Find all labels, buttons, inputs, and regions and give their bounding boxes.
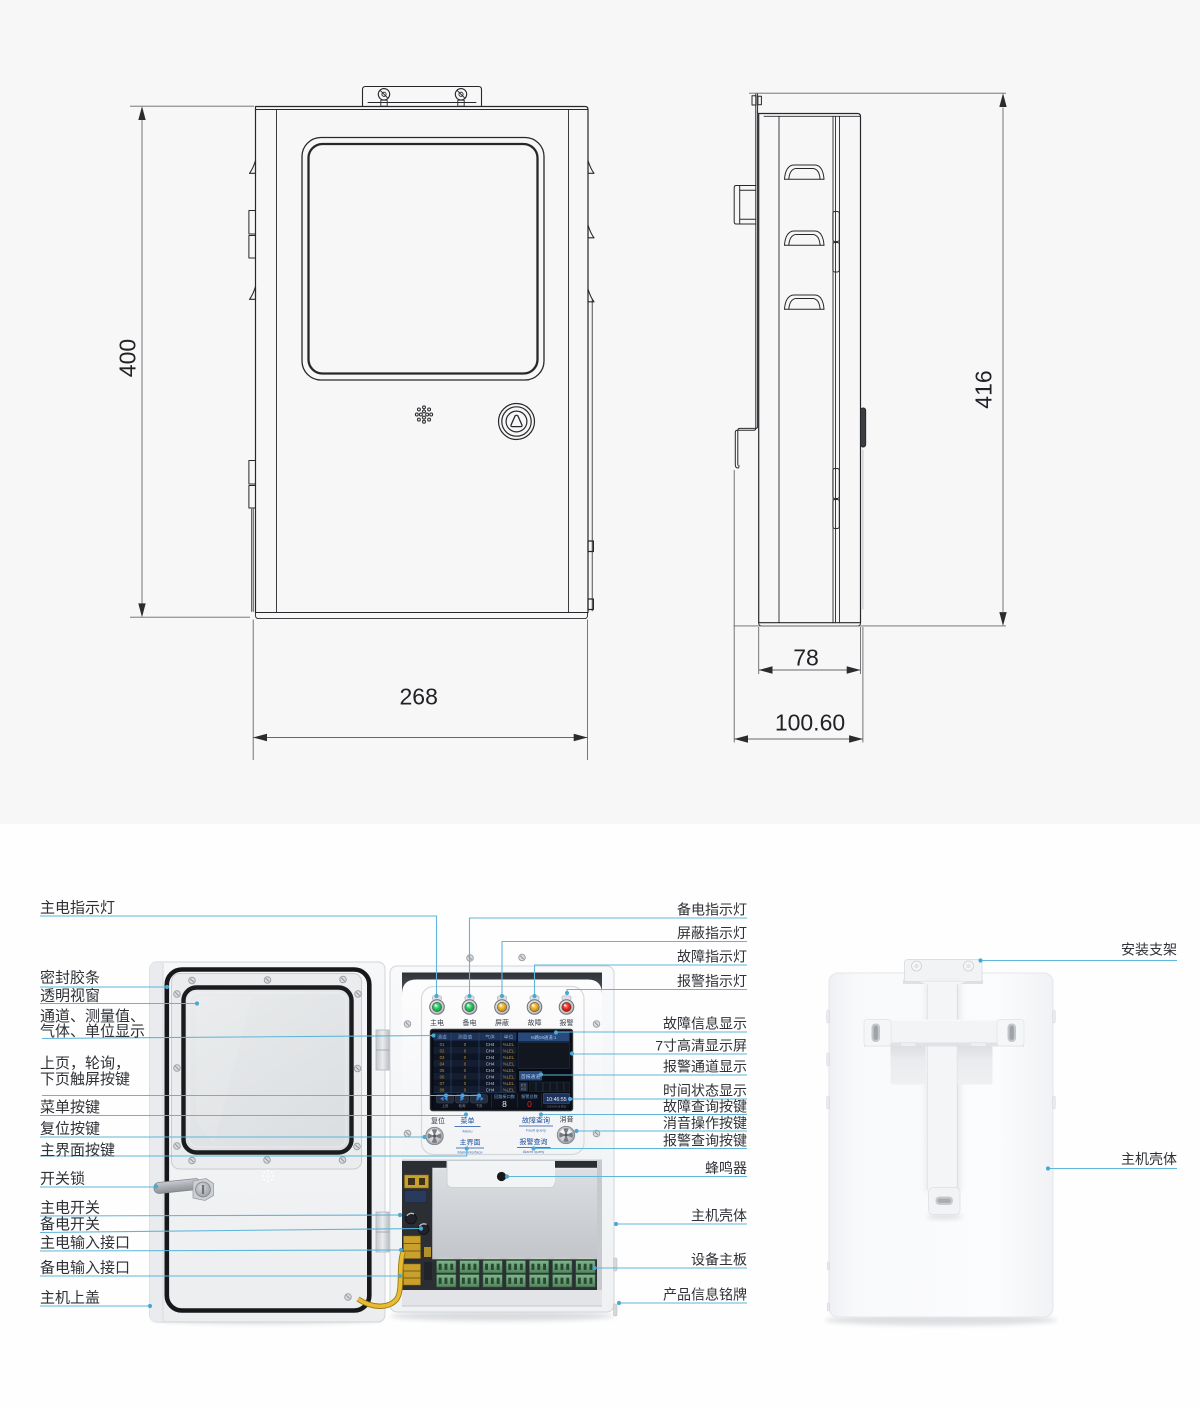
svg-text:%LEL: %LEL xyxy=(503,1081,515,1086)
svg-text:CH4: CH4 xyxy=(486,1042,495,1047)
svg-text:主机壳体: 主机壳体 xyxy=(691,1208,747,1224)
svg-text:下页: 下页 xyxy=(476,1104,483,1108)
svg-text:416: 416 xyxy=(971,370,997,408)
svg-text:报警指示灯: 报警指示灯 xyxy=(677,973,747,989)
svg-text:故障: 故障 xyxy=(528,1018,542,1027)
svg-text:268: 268 xyxy=(400,684,438,710)
svg-text:故障指示灯: 故障指示灯 xyxy=(677,949,747,965)
svg-text:M路08通道:1: M路08通道:1 xyxy=(531,1034,557,1041)
svg-text:故障查询: 故障查询 xyxy=(522,1116,550,1125)
svg-text:CH4: CH4 xyxy=(486,1087,495,1092)
svg-text:设备主板: 设备主板 xyxy=(691,1252,747,1268)
svg-text:安装支架: 安装支架 xyxy=(1121,942,1177,958)
svg-text:78: 78 xyxy=(793,645,819,671)
svg-text:01: 01 xyxy=(440,1042,445,1047)
svg-text:100.60: 100.60 xyxy=(775,710,845,736)
svg-text:CH4: CH4 xyxy=(486,1081,495,1086)
svg-text:Menu: Menu xyxy=(462,1129,472,1134)
svg-text:02: 02 xyxy=(440,1048,445,1053)
svg-text:主机上盖: 主机上盖 xyxy=(40,1290,100,1307)
svg-text:单位: 单位 xyxy=(504,1034,514,1041)
svg-text:复位: 复位 xyxy=(431,1116,445,1125)
svg-text:备电开关: 备电开关 xyxy=(40,1216,100,1233)
svg-text:气体: 气体 xyxy=(485,1034,495,1041)
svg-text:通道: 通道 xyxy=(520,1086,526,1091)
svg-text:产品信息铭牌: 产品信息铭牌 xyxy=(663,1287,747,1303)
svg-text:上页: 上页 xyxy=(442,1103,449,1108)
svg-text:通道: 通道 xyxy=(437,1034,447,1041)
svg-text:10:46:55: 10:46:55 xyxy=(546,1097,566,1103)
svg-text:主电开关: 主电开关 xyxy=(40,1200,100,1217)
svg-text:测量值: 测量值 xyxy=(458,1034,473,1041)
svg-text:上页，轮询，: 上页，轮询， xyxy=(40,1055,130,1072)
svg-text:密封胶条: 密封胶条 xyxy=(40,970,100,987)
svg-text:CH4: CH4 xyxy=(486,1068,495,1073)
svg-text:报警查询: 报警查询 xyxy=(520,1137,548,1146)
svg-text:故障信息显示: 故障信息显示 xyxy=(663,1016,747,1032)
svg-text:轮询: 轮询 xyxy=(459,1103,466,1108)
svg-text:%LEL: %LEL xyxy=(503,1074,515,1079)
svg-text:07: 07 xyxy=(440,1081,445,1086)
svg-text:菜单按键: 菜单按键 xyxy=(40,1099,100,1116)
svg-text:故障查询按键: 故障查询按键 xyxy=(663,1099,747,1115)
svg-text:菜单: 菜单 xyxy=(461,1116,475,1125)
svg-text:06: 06 xyxy=(440,1074,445,1079)
svg-text:8: 8 xyxy=(502,1099,507,1109)
svg-text:%LEL: %LEL xyxy=(503,1061,515,1066)
svg-text:复位按键: 复位按键 xyxy=(40,1120,100,1138)
svg-text:主界面: 主界面 xyxy=(460,1138,481,1147)
svg-text:%LEL: %LEL xyxy=(503,1087,515,1092)
svg-text:400: 400 xyxy=(115,339,141,377)
svg-text:05: 05 xyxy=(440,1068,445,1073)
svg-text:备电输入接口: 备电输入接口 xyxy=(40,1260,130,1277)
svg-text:下页触屏按键: 下页触屏按键 xyxy=(40,1071,130,1088)
svg-text:08: 08 xyxy=(440,1087,445,1092)
svg-text:CH4: CH4 xyxy=(486,1061,495,1066)
svg-text:时间状态显示: 时间状态显示 xyxy=(663,1083,747,1099)
svg-text:报警通道显示: 报警通道显示 xyxy=(663,1059,747,1075)
svg-text:Main interface: Main interface xyxy=(457,1150,483,1155)
svg-text:报警: 报警 xyxy=(560,1018,574,1027)
svg-text:备电: 备电 xyxy=(463,1018,477,1027)
svg-text:CH4: CH4 xyxy=(486,1048,495,1053)
svg-text:Fault query: Fault query xyxy=(526,1128,546,1133)
svg-text:%LEL: %LEL xyxy=(503,1042,515,1047)
svg-text:备电指示灯: 备电指示灯 xyxy=(677,902,747,918)
svg-text:%LEL: %LEL xyxy=(503,1055,515,1060)
svg-text:主电输入接口: 主电输入接口 xyxy=(40,1235,130,1252)
svg-text:蜂鸣器: 蜂鸣器 xyxy=(705,1160,747,1176)
svg-text:2023-06-18 周日: 2023-06-18 周日 xyxy=(547,1104,567,1108)
svg-text:报警查询按键: 报警查询按键 xyxy=(663,1133,747,1149)
svg-text:CH4: CH4 xyxy=(486,1055,495,1060)
svg-text:主界面按键: 主界面按键 xyxy=(40,1142,115,1159)
svg-text:0: 0 xyxy=(527,1099,532,1109)
svg-text:04: 04 xyxy=(440,1061,445,1066)
svg-text:主电指示灯: 主电指示灯 xyxy=(40,900,115,917)
svg-text:透明视窗: 透明视窗 xyxy=(40,987,100,1005)
svg-text:消音: 消音 xyxy=(560,1115,574,1124)
svg-text:CH4: CH4 xyxy=(486,1074,495,1079)
svg-text:屏蔽指示灯: 屏蔽指示灯 xyxy=(677,925,747,941)
svg-text:屏蔽: 屏蔽 xyxy=(495,1018,509,1027)
svg-text:%LEL: %LEL xyxy=(503,1068,515,1073)
svg-text:开关锁: 开关锁 xyxy=(40,1171,85,1188)
svg-text:消音操作按键: 消音操作按键 xyxy=(663,1115,747,1131)
svg-text:%LEL: %LEL xyxy=(503,1048,515,1053)
svg-text:首报通道: 首报通道 xyxy=(521,1073,540,1080)
svg-text:主电: 主电 xyxy=(430,1018,444,1027)
svg-text:气体、单位显示: 气体、单位显示 xyxy=(40,1023,145,1040)
svg-text:7寸高清显示屏: 7寸高清显示屏 xyxy=(655,1038,747,1054)
svg-text:03: 03 xyxy=(440,1055,445,1060)
svg-text:主机壳体: 主机壳体 xyxy=(1121,1151,1177,1167)
